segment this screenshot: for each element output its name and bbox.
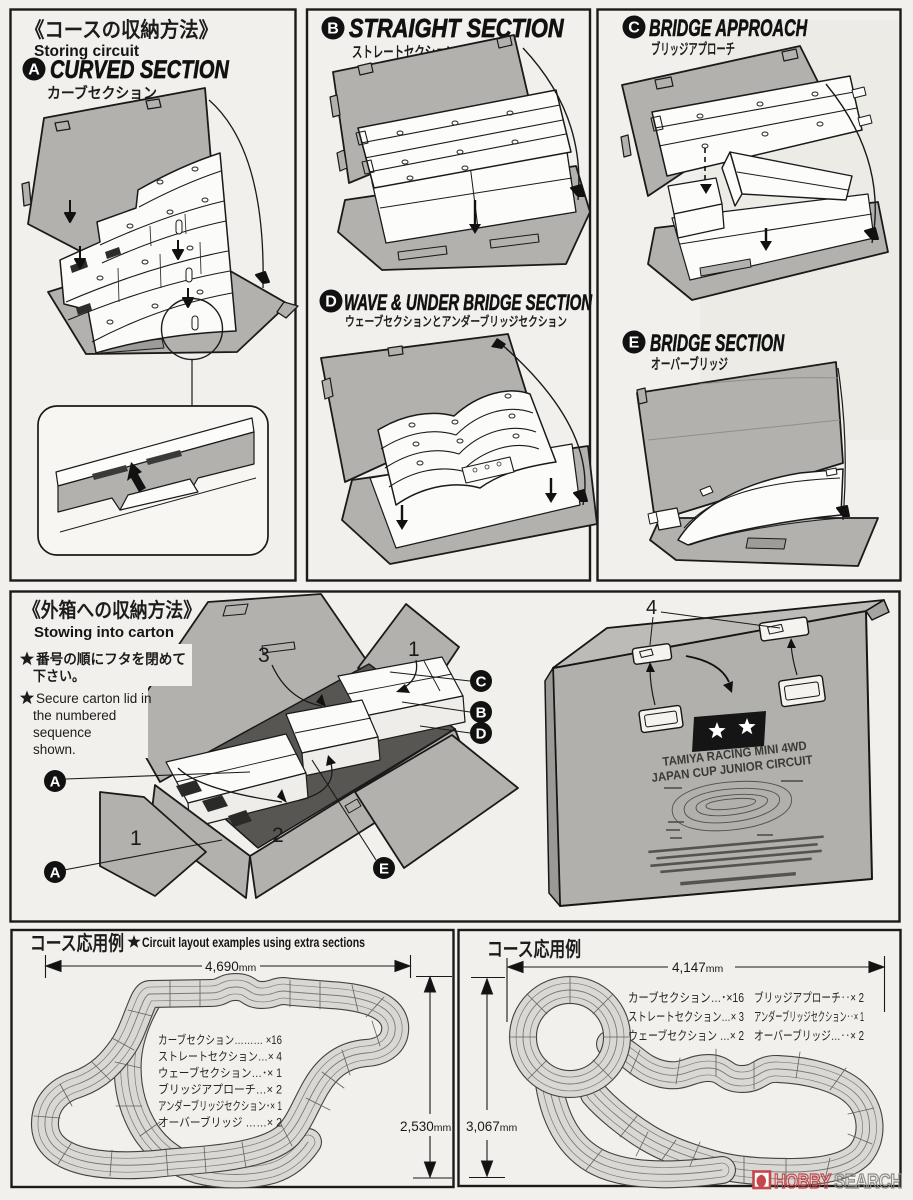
svg-text:Stowing into carton: Stowing into carton bbox=[34, 624, 174, 641]
svg-text:B: B bbox=[327, 21, 339, 38]
svg-text:3,067mm: 3,067mm bbox=[466, 1119, 518, 1134]
svg-text:ストレートセクション…× 3: ストレートセクション…× 3 bbox=[628, 1010, 744, 1024]
svg-text:D: D bbox=[476, 726, 487, 743]
svg-text:BRIDGE APPROACH: BRIDGE APPROACH bbox=[649, 16, 808, 42]
svg-text:コース応用例: コース応用例 bbox=[487, 937, 581, 961]
svg-text:ブリッジアプローチ…× 2: ブリッジアプローチ…× 2 bbox=[158, 1082, 282, 1097]
svg-text:番号の順にフタを閉めて: 番号の順にフタを閉めて bbox=[35, 651, 186, 667]
svg-text:CURVED SECTION: CURVED SECTION bbox=[50, 56, 229, 84]
svg-text:WAVE & UNDER BRIDGE SECTION: WAVE & UNDER BRIDGE SECTION bbox=[344, 290, 592, 315]
svg-text:3: 3 bbox=[258, 644, 270, 667]
svg-text:HOBBY: HOBBY bbox=[774, 1171, 832, 1193]
svg-text:E: E bbox=[379, 861, 389, 878]
svg-text:2: 2 bbox=[272, 824, 284, 847]
svg-text:カーブセクション…･×16: カーブセクション…･×16 bbox=[628, 990, 744, 1005]
svg-text:オーバーブリッジ…‥× 2: オーバーブリッジ…‥× 2 bbox=[754, 1028, 864, 1043]
svg-text:B: B bbox=[476, 705, 487, 722]
svg-text:BRIDGE SECTION: BRIDGE SECTION bbox=[650, 331, 785, 357]
svg-text:sequence: sequence bbox=[33, 725, 92, 740]
svg-text:オーバーブリッジ: オーバーブリッジ bbox=[651, 355, 728, 373]
svg-text:ブリッジアプローチ: ブリッジアプローチ bbox=[651, 40, 735, 58]
svg-text:コース応用例: コース応用例 bbox=[30, 931, 124, 955]
svg-text:shown.: shown. bbox=[33, 742, 76, 757]
svg-text:アンダーブリッジセクション‥× 1: アンダーブリッジセクション‥× 1 bbox=[754, 1009, 864, 1024]
svg-text:Circuit layout examples using: Circuit layout examples using extra sect… bbox=[142, 934, 365, 950]
svg-text:SEARCH: SEARCH bbox=[834, 1171, 902, 1193]
svg-text:2,530mm: 2,530mm bbox=[400, 1119, 452, 1134]
svg-text:4,690mm: 4,690mm bbox=[205, 959, 257, 974]
svg-text:《外箱への収納方法》: 《外箱への収納方法》 bbox=[23, 598, 201, 622]
svg-text:C: C bbox=[628, 20, 640, 37]
svg-text:A: A bbox=[28, 62, 40, 79]
svg-text:A: A bbox=[50, 774, 61, 791]
svg-text:C: C bbox=[476, 674, 487, 691]
svg-text:アンダーブリッジセクション･× 1: アンダーブリッジセクション･× 1 bbox=[158, 1098, 282, 1113]
svg-text:ウェーブセクション …× 2: ウェーブセクション …× 2 bbox=[628, 1028, 744, 1043]
svg-text:ウェーブセクション…･× 1: ウェーブセクション…･× 1 bbox=[158, 1065, 282, 1080]
svg-text:ブリッジアプローチ‥× 2: ブリッジアプローチ‥× 2 bbox=[754, 990, 864, 1005]
svg-text:A: A bbox=[50, 865, 61, 882]
svg-text:4: 4 bbox=[646, 597, 657, 619]
svg-text:1: 1 bbox=[130, 827, 142, 850]
svg-text:D: D bbox=[325, 294, 337, 311]
svg-text:4,147mm: 4,147mm bbox=[672, 960, 724, 975]
svg-text:E: E bbox=[629, 335, 640, 352]
svg-text:ウェーブセクションとアンダーブリッジセクション: ウェーブセクションとアンダーブリッジセクション bbox=[345, 314, 567, 329]
svg-text:STRAIGHT SECTION: STRAIGHT SECTION bbox=[349, 14, 564, 43]
svg-text:the numbered: the numbered bbox=[33, 708, 116, 723]
svg-text:《コースの収納方法》: 《コースの収納方法》 bbox=[25, 18, 218, 42]
svg-text:オーバーブリッジ ……× 2: オーバーブリッジ ……× 2 bbox=[158, 1115, 282, 1130]
svg-text:Secure carton lid in: Secure carton lid in bbox=[36, 691, 152, 706]
svg-text:カーブセクション……… ×16: カーブセクション……… ×16 bbox=[158, 1032, 282, 1047]
svg-text:下さい。: 下さい。 bbox=[33, 668, 85, 684]
svg-text:1: 1 bbox=[408, 638, 420, 661]
svg-text:ストレートセクション…× 4: ストレートセクション…× 4 bbox=[158, 1050, 282, 1064]
